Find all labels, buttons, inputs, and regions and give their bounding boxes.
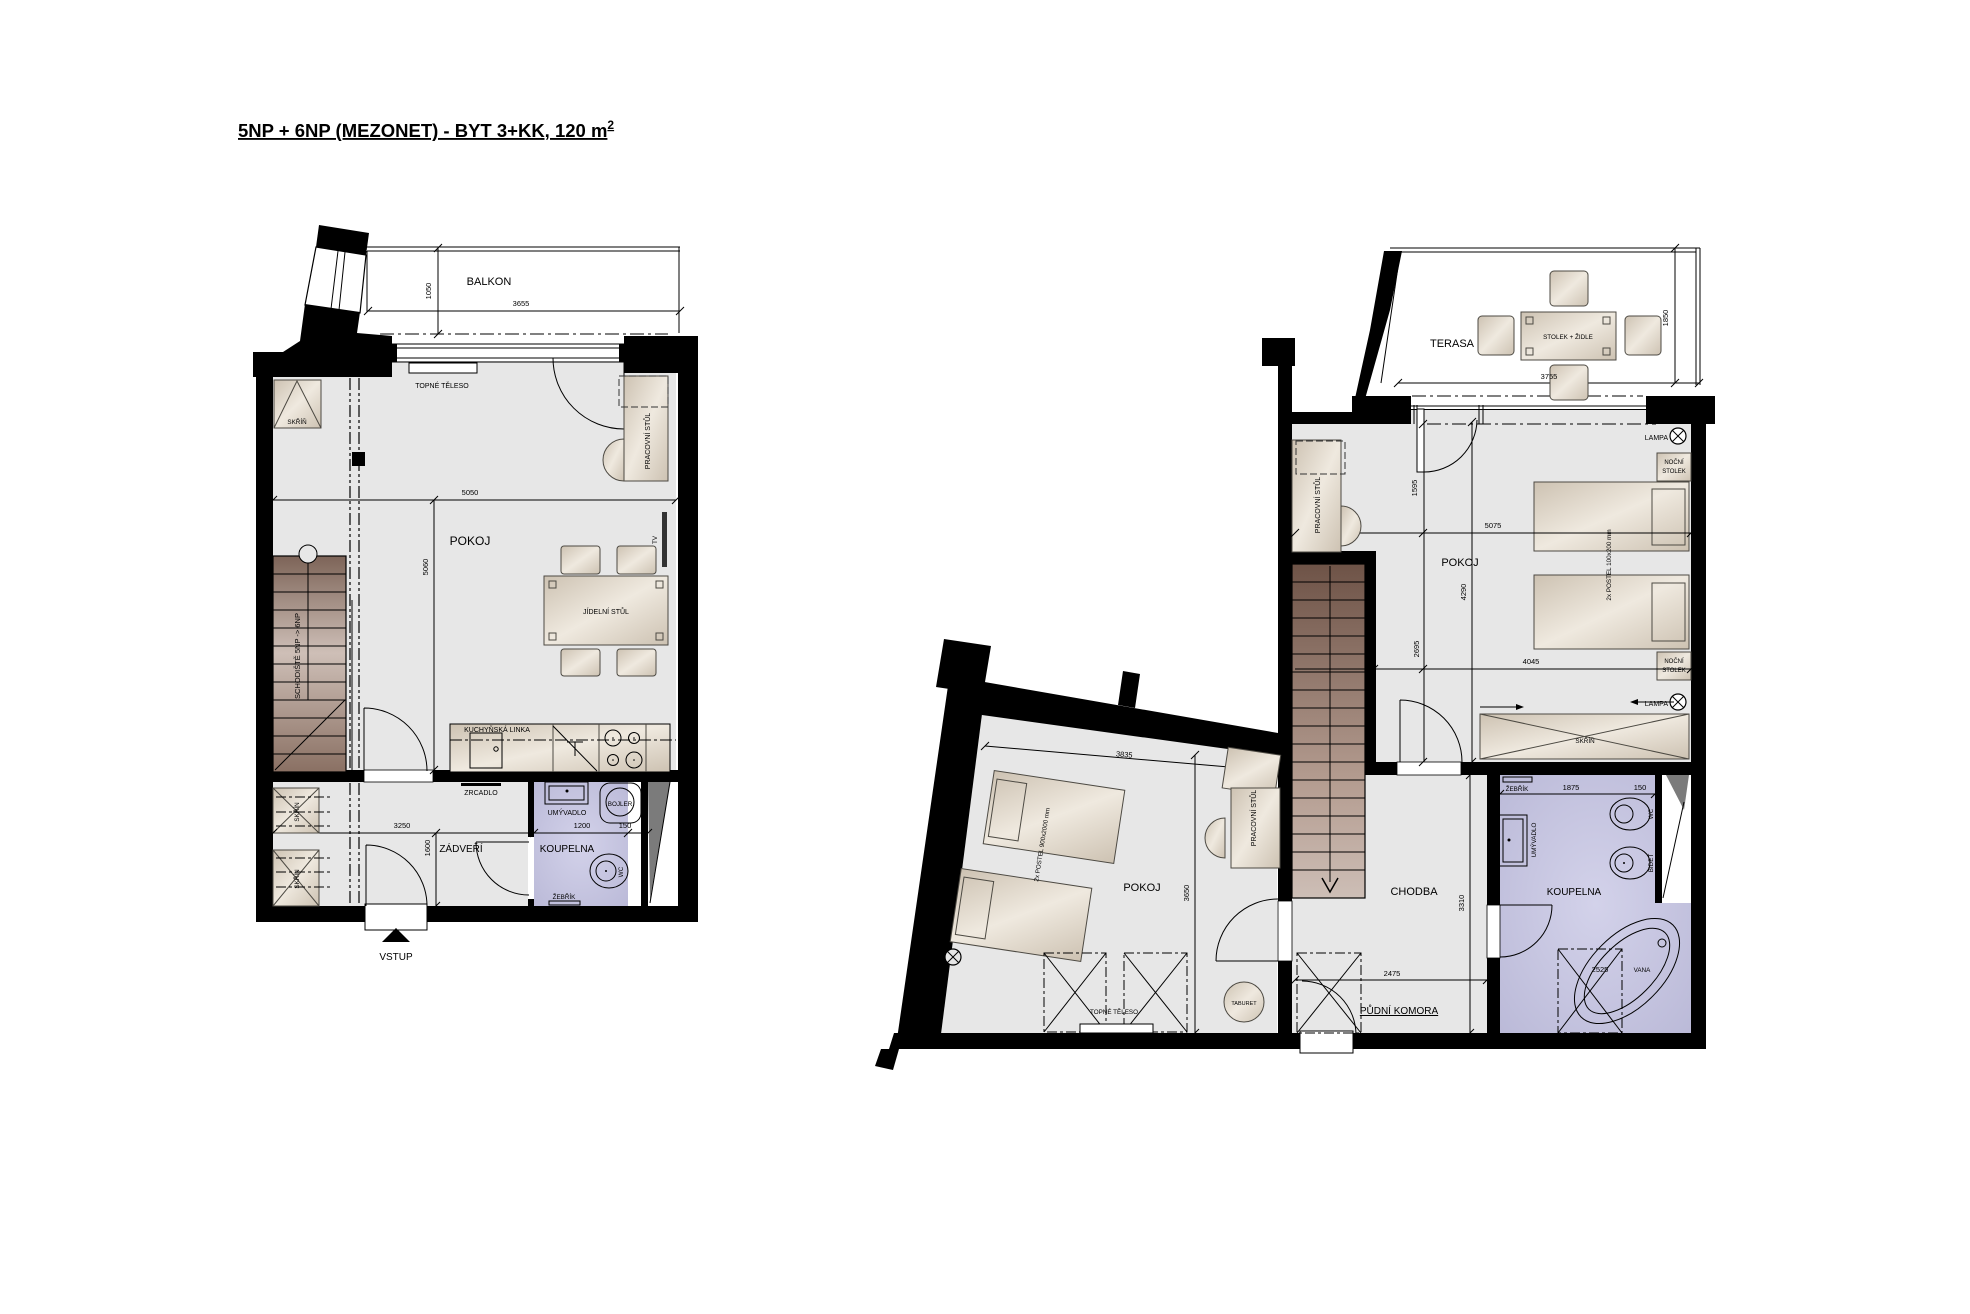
svg-text:KOUPELNA: KOUPELNA — [540, 844, 595, 855]
svg-text:150: 150 — [619, 821, 632, 830]
svg-text:TOPNÉ TĚLESO: TOPNÉ TĚLESO — [1090, 1007, 1138, 1016]
svg-text:PRACOVNÍ STŮL: PRACOVNÍ STŮL — [643, 413, 652, 470]
svg-text:2695: 2695 — [1412, 641, 1421, 658]
svg-text:ZRCADLO: ZRCADLO — [464, 790, 498, 797]
svg-text:1600: 1600 — [423, 840, 432, 857]
svg-text:1875: 1875 — [1563, 783, 1580, 792]
svg-text:POKOJ: POKOJ — [1123, 882, 1160, 894]
svg-text:5075: 5075 — [1485, 521, 1502, 530]
svg-text:4290: 4290 — [1459, 584, 1468, 601]
svg-text:POKOJ: POKOJ — [450, 534, 491, 548]
svg-text:1595: 1595 — [1410, 480, 1419, 497]
svg-text:3835: 3835 — [1116, 749, 1133, 759]
svg-text:150: 150 — [1634, 783, 1647, 792]
svg-text:3755: 3755 — [1541, 372, 1558, 381]
svg-text:BALKON: BALKON — [467, 276, 512, 288]
svg-text:STOLEK: STOLEK — [1662, 469, 1686, 475]
svg-text:UMÝVADLO: UMÝVADLO — [548, 808, 587, 817]
svg-text:5050: 5050 — [462, 488, 479, 497]
svg-text:PRACOVNÍ STŮL: PRACOVNÍ STŮL — [1313, 477, 1322, 534]
svg-text:VANA: VANA — [1634, 967, 1651, 974]
svg-text:SKŘÍŇ: SKŘÍŇ — [1575, 736, 1595, 745]
svg-text:KUCHYŇSKÁ LINKA: KUCHYŇSKÁ LINKA — [464, 725, 530, 734]
svg-text:WC: WC — [1648, 808, 1655, 819]
svg-text:3310: 3310 — [1457, 895, 1466, 912]
svg-text:UMÝVADLO: UMÝVADLO — [1529, 822, 1538, 857]
svg-text:TERASA: TERASA — [1430, 338, 1475, 350]
svg-text:NOČNÍ: NOČNÍ — [1664, 658, 1684, 665]
svg-text:1200: 1200 — [574, 821, 591, 830]
svg-text:PRACOVNÍ STŮL: PRACOVNÍ STŮL — [1249, 790, 1258, 847]
svg-text:1850: 1850 — [1661, 310, 1670, 327]
svg-text:JÍDELNÍ STŮL: JÍDELNÍ STŮL — [583, 607, 629, 616]
svg-text:5060: 5060 — [421, 559, 430, 576]
svg-text:3250: 3250 — [394, 821, 411, 830]
svg-text:PŮDNÍ KOMORA: PŮDNÍ KOMORA — [1360, 1004, 1439, 1017]
svg-text:KOUPELNA: KOUPELNA — [1547, 887, 1602, 898]
svg-text:TABURET: TABURET — [1231, 1001, 1257, 1007]
svg-text:2x POSTEL 100x200 mm: 2x POSTEL 100x200 mm — [1606, 529, 1613, 600]
svg-text:BIDET: BIDET — [1648, 854, 1655, 873]
svg-text:ŽEBŘÍK: ŽEBŘÍK — [553, 892, 577, 901]
svg-text:CHODBA: CHODBA — [1390, 886, 1438, 898]
svg-text:TV: TV — [652, 535, 659, 544]
svg-text:TOPNÉ TĚLESO: TOPNÉ TĚLESO — [415, 381, 469, 390]
svg-text:1050: 1050 — [424, 283, 433, 300]
svg-text:3650: 3650 — [1182, 885, 1191, 902]
svg-text:4045: 4045 — [1523, 657, 1540, 666]
svg-text:2475: 2475 — [1384, 969, 1401, 978]
svg-text:3655: 3655 — [513, 299, 530, 308]
svg-text:SKŘÍŇ: SKŘÍŇ — [287, 417, 307, 426]
svg-text:POKOJ: POKOJ — [1441, 557, 1478, 569]
svg-text:LAMPA: LAMPA — [1645, 435, 1669, 442]
svg-text:5NP + 6NP (MEZONET) - BYT 3+KK: 5NP + 6NP (MEZONET) - BYT 3+KK, 120 m2 — [238, 118, 614, 141]
svg-text:ŽEBŘÍK: ŽEBŘÍK — [1506, 784, 1530, 793]
svg-text:VSTUP: VSTUP — [379, 952, 413, 963]
svg-text:BOJLER: BOJLER — [608, 801, 633, 808]
svg-text:WC: WC — [618, 866, 625, 877]
svg-text:NOČNÍ: NOČNÍ — [1664, 459, 1684, 466]
svg-text:STOLEK + ŽIDLE: STOLEK + ŽIDLE — [1543, 332, 1593, 341]
svg-text:SCHODIŠTĚ 5NP -> 6NP: SCHODIŠTĚ 5NP -> 6NP — [293, 613, 302, 699]
